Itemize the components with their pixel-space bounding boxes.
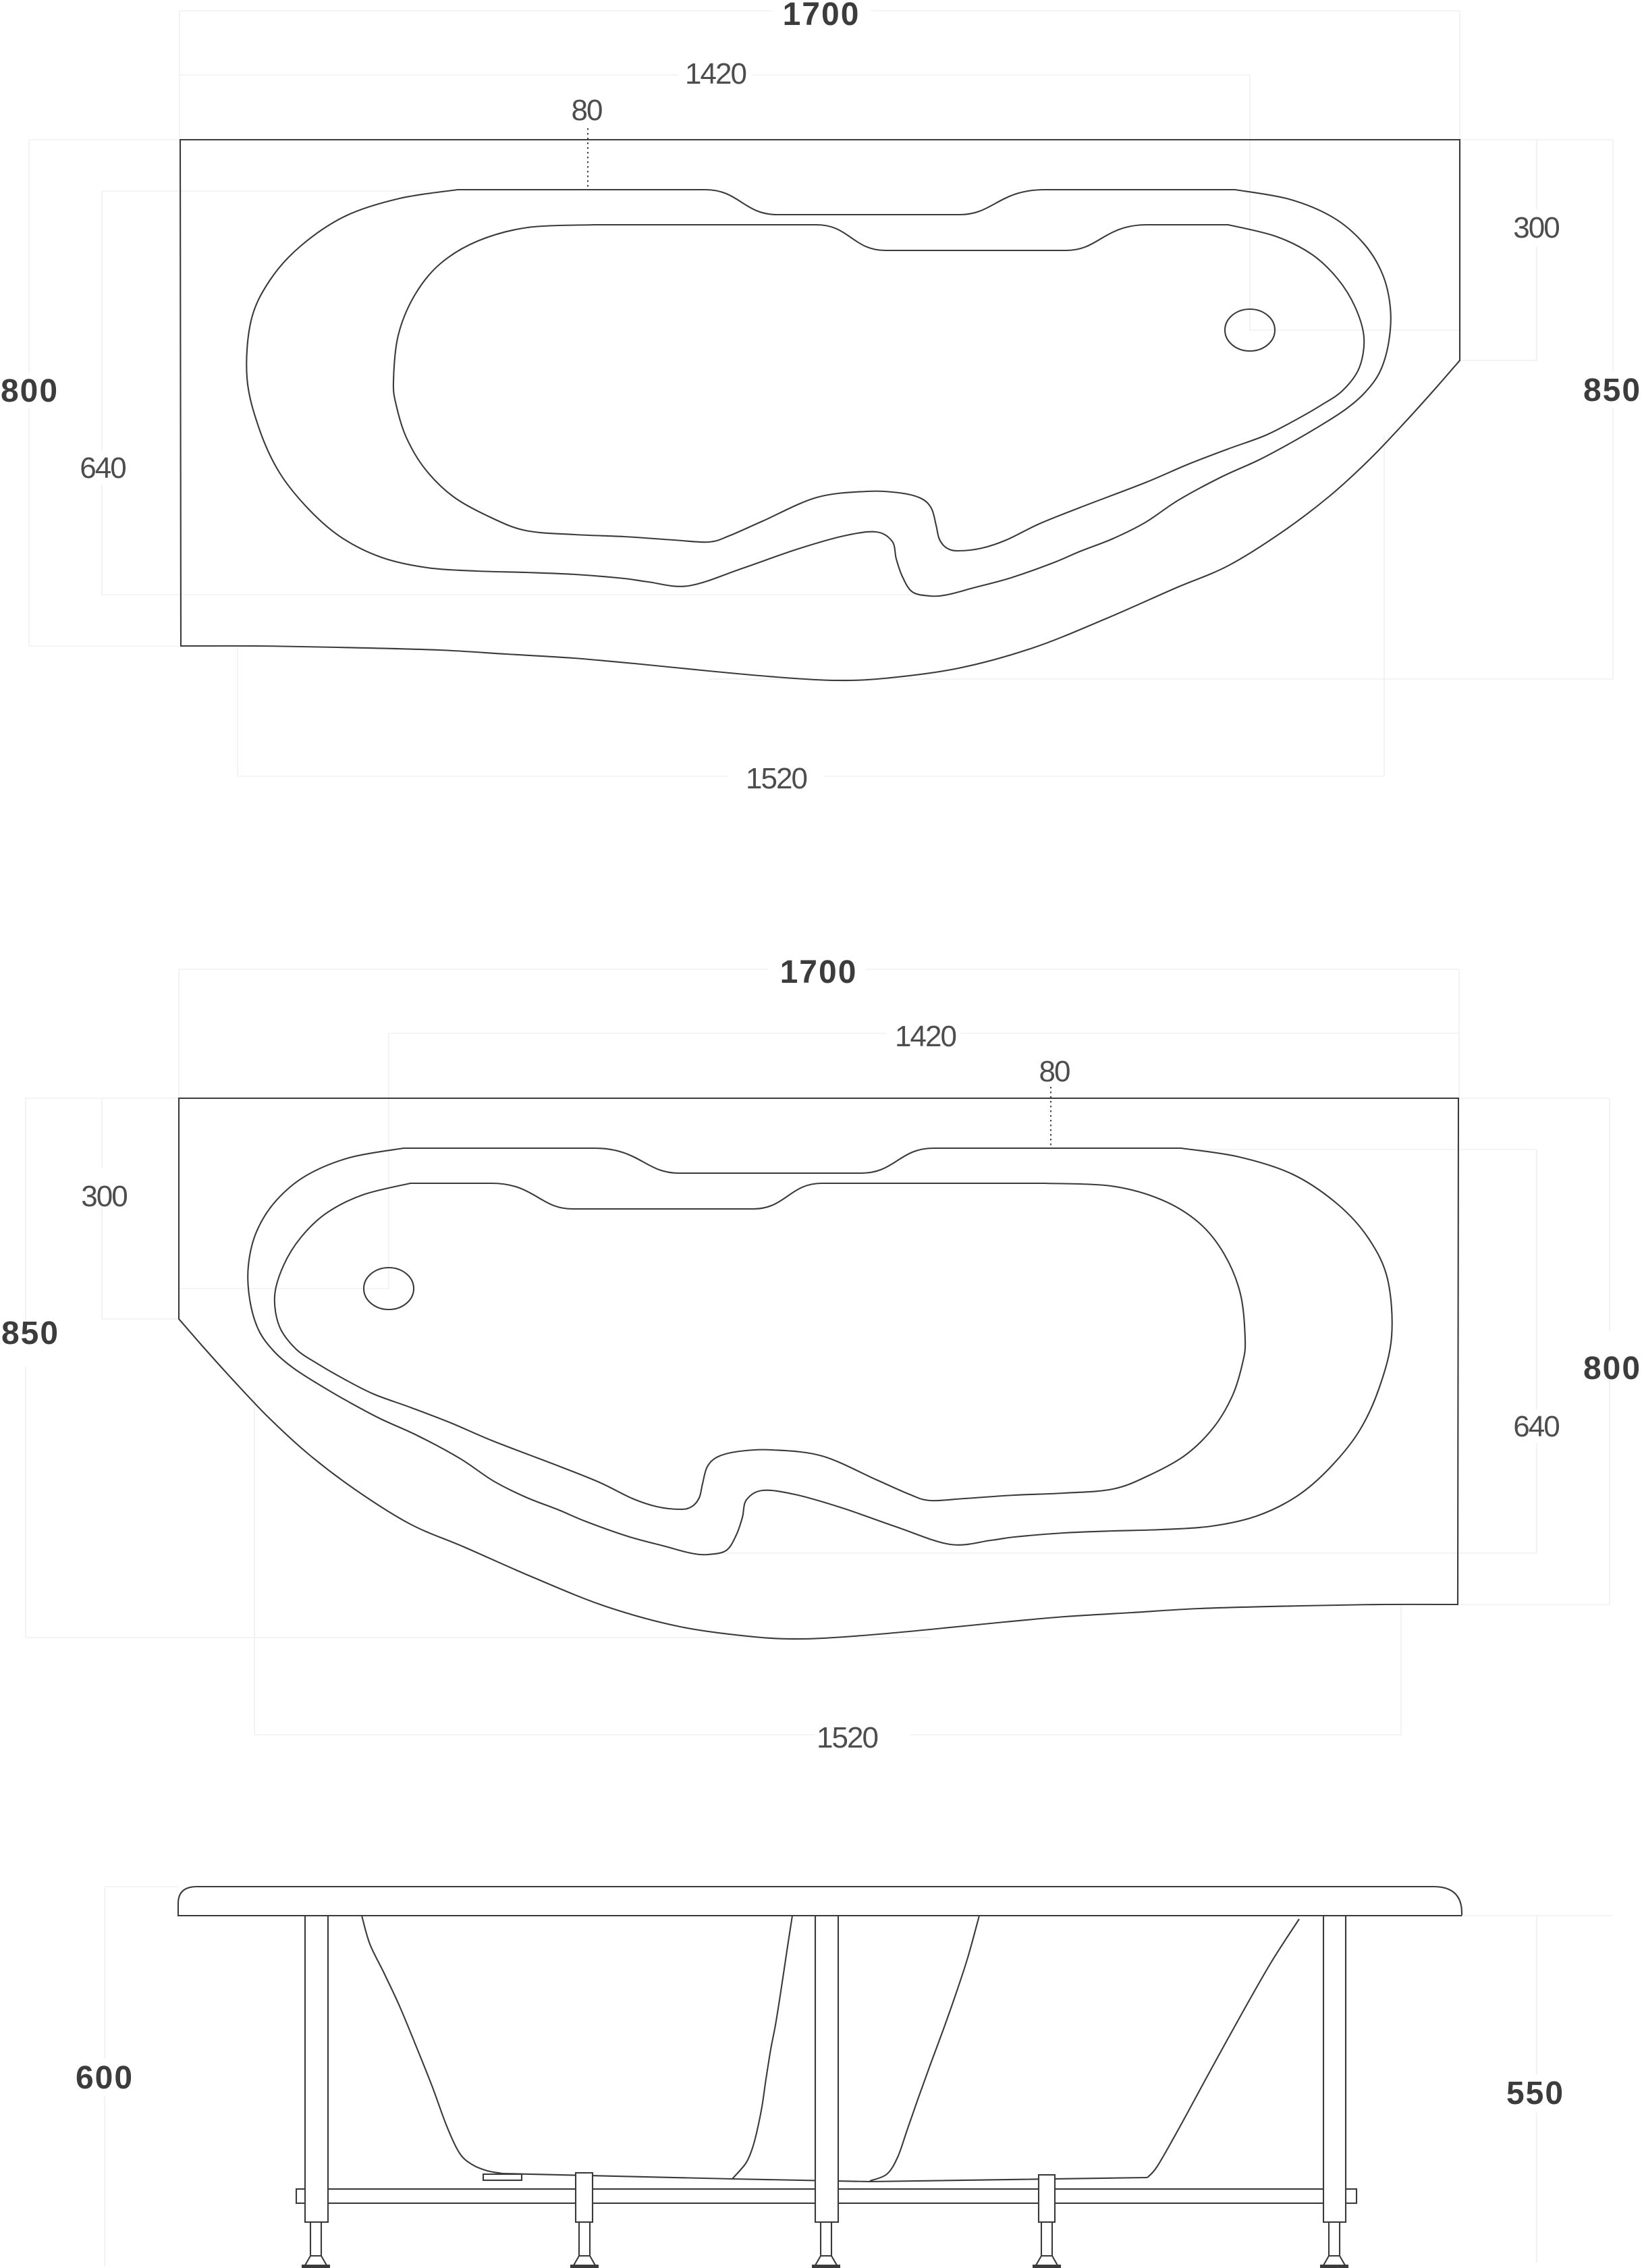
svg-text:300: 300 [81, 1180, 127, 1213]
svg-text:1700: 1700 [780, 954, 858, 990]
svg-text:80: 80 [572, 94, 602, 127]
svg-text:1520: 1520 [746, 762, 806, 795]
svg-text:850: 850 [1583, 373, 1641, 408]
svg-text:300: 300 [1513, 211, 1559, 244]
svg-text:640: 640 [80, 452, 126, 485]
svg-text:640: 640 [1513, 1410, 1559, 1443]
svg-text:1420: 1420 [895, 1020, 956, 1053]
svg-text:850: 850 [1, 1316, 59, 1351]
svg-text:1700: 1700 [783, 0, 860, 32]
svg-text:800: 800 [1, 373, 59, 409]
svg-text:80: 80 [1039, 1055, 1070, 1088]
svg-text:800: 800 [1583, 1351, 1641, 1386]
svg-text:600: 600 [76, 2060, 134, 2096]
svg-text:1420: 1420 [685, 57, 746, 90]
svg-text:550: 550 [1506, 2076, 1564, 2111]
svg-text:1520: 1520 [817, 1721, 877, 1754]
